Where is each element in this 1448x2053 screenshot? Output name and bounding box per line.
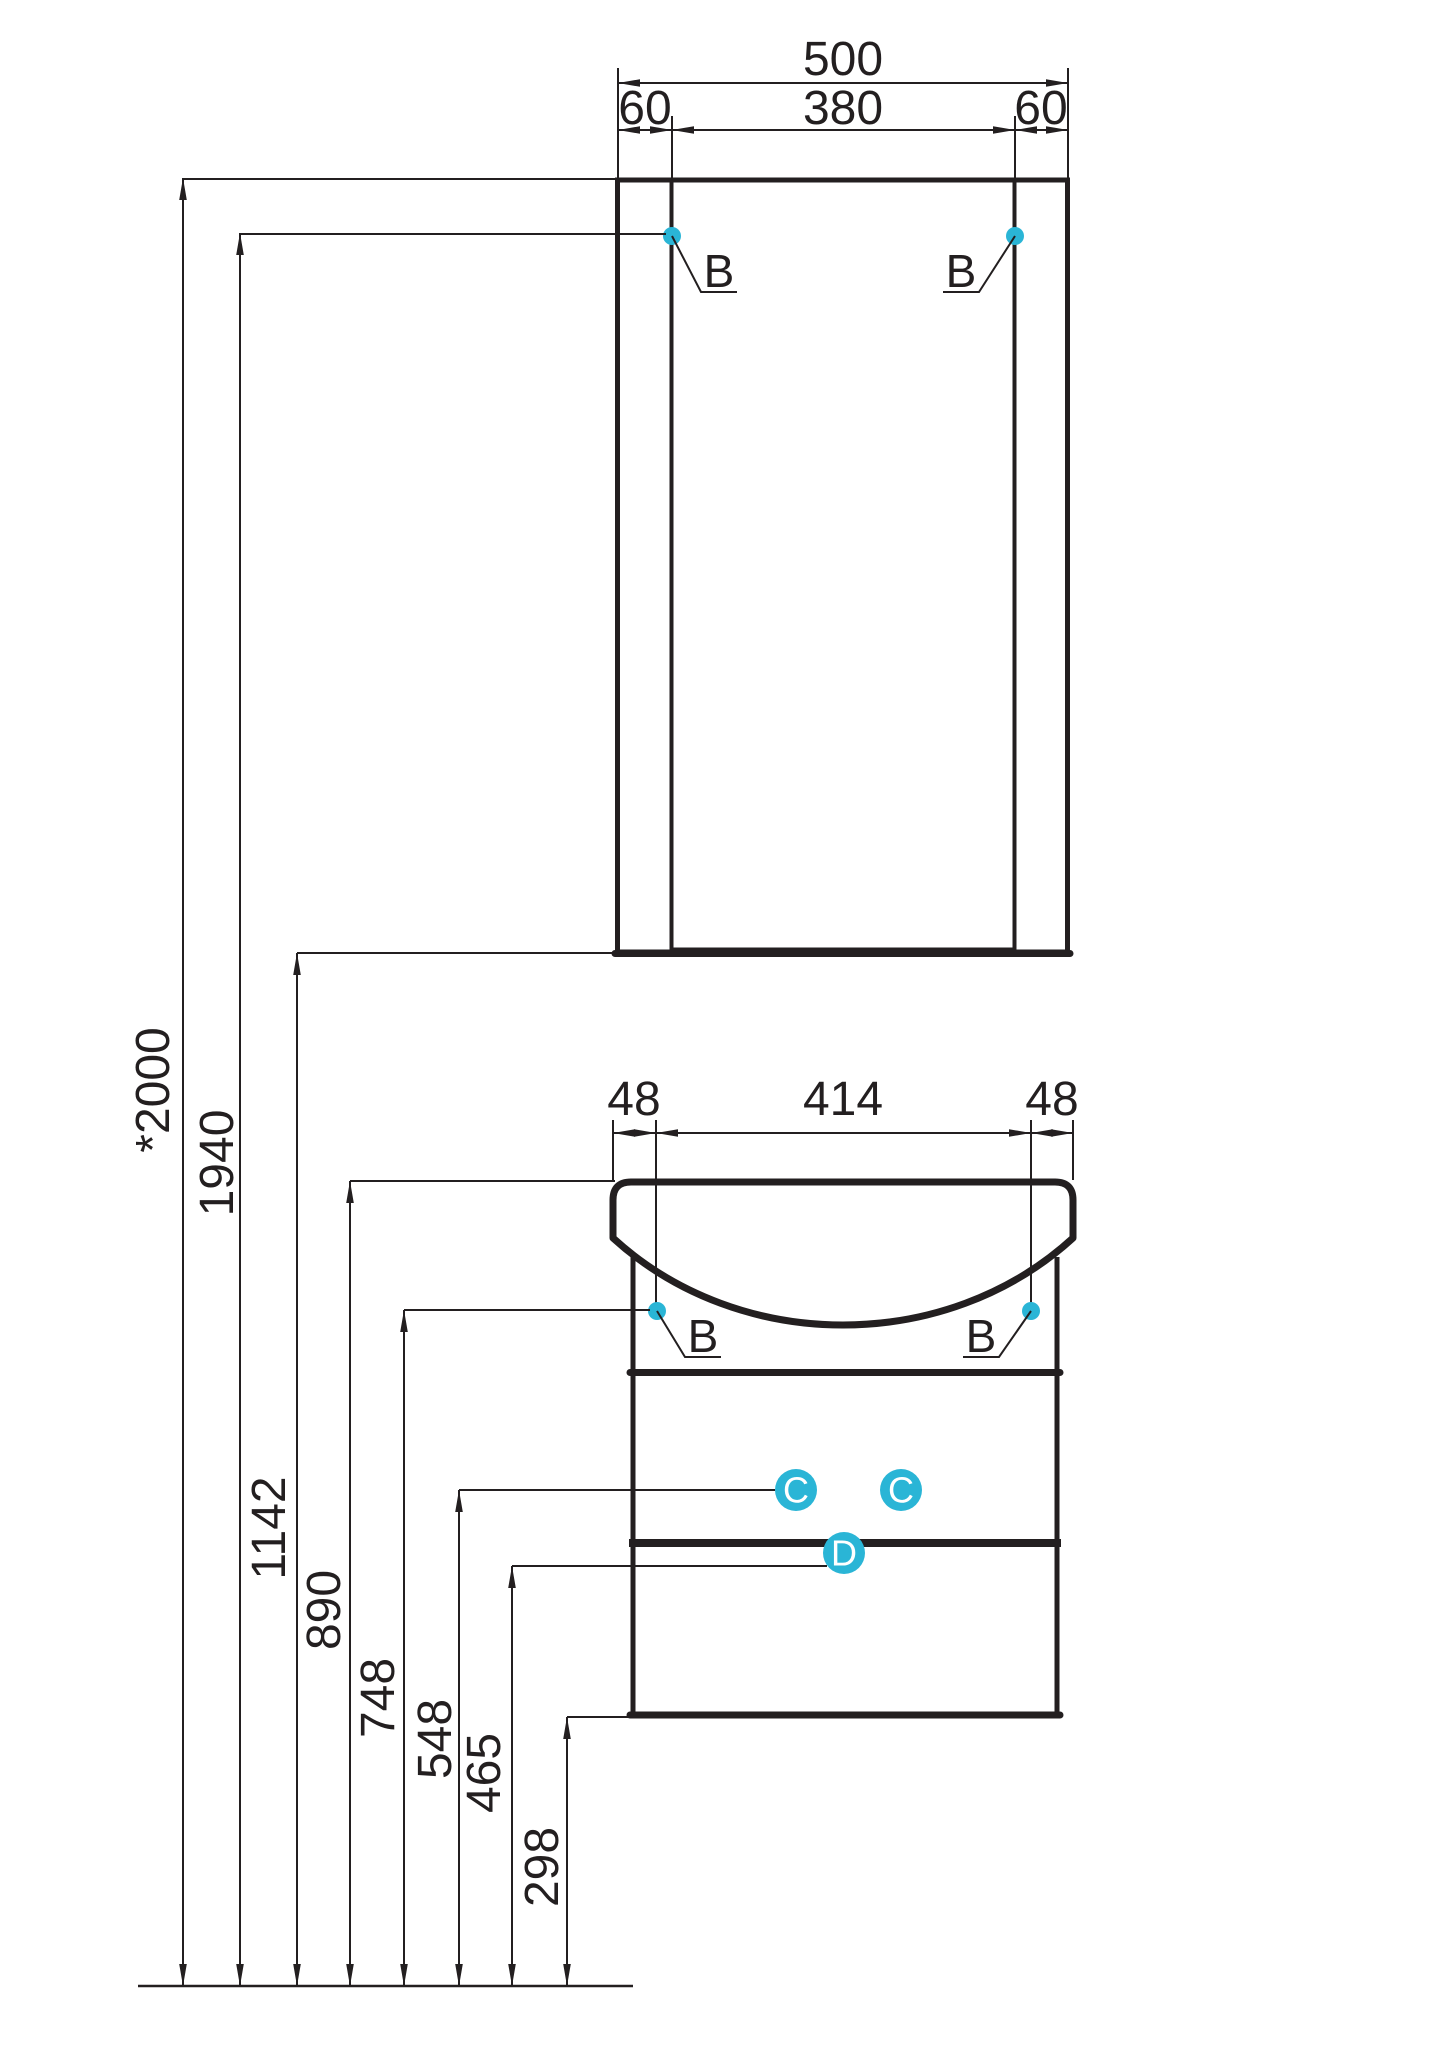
dim-label-890: 890	[298, 1570, 351, 1650]
sink-width-dimensions: 48 414 48	[607, 1073, 1078, 1305]
dim-label-sink-center: 414	[803, 1073, 883, 1126]
handle-c-label: C	[888, 1470, 914, 1511]
mirror-mounting-callouts: B B	[663, 227, 1024, 297]
dim-label-mirror-total: 500	[803, 33, 883, 86]
dim-label-1142: 1142	[243, 1476, 296, 1579]
dim-label-mirror-left: 60	[618, 82, 671, 135]
mirror-width-dimensions: 500 60 380 60	[618, 33, 1068, 178]
callout-label-b: B	[704, 245, 735, 297]
washbasin-outline	[613, 1182, 1073, 1325]
mirror-cabinet	[615, 180, 1070, 954]
handle-c-label: C	[783, 1470, 809, 1511]
vanity-mounting-callouts: B B	[648, 1302, 1040, 1362]
callout-label-b: B	[946, 245, 977, 297]
handle-d-label: D	[831, 1533, 857, 1574]
dim-label-298: 298	[516, 1827, 569, 1907]
dim-label-748: 748	[352, 1658, 405, 1738]
installation-drawing-page: 500 60 380 60 B B 48 414 48	[0, 0, 1448, 2048]
installation-drawing: 500 60 380 60 B B 48 414 48	[0, 0, 1448, 2048]
vanity-unit	[613, 1182, 1073, 1715]
dim-label-1940: 1940	[191, 1110, 244, 1217]
dim-label-sink-left: 48	[607, 1073, 660, 1126]
dim-label-mirror-right: 60	[1014, 82, 1067, 135]
handle-markers: C C D	[775, 1469, 922, 1574]
callout-label-b: B	[966, 1310, 997, 1362]
dim-label-sink-right: 48	[1025, 1073, 1078, 1126]
callout-label-b: B	[688, 1310, 719, 1362]
dim-label-548: 548	[409, 1699, 462, 1779]
dim-label-465: 465	[458, 1733, 511, 1813]
dim-label-2000: *2000	[127, 1027, 180, 1152]
mirror-cabinet-outline	[618, 180, 1068, 952]
dim-label-mirror-center: 380	[803, 82, 883, 135]
